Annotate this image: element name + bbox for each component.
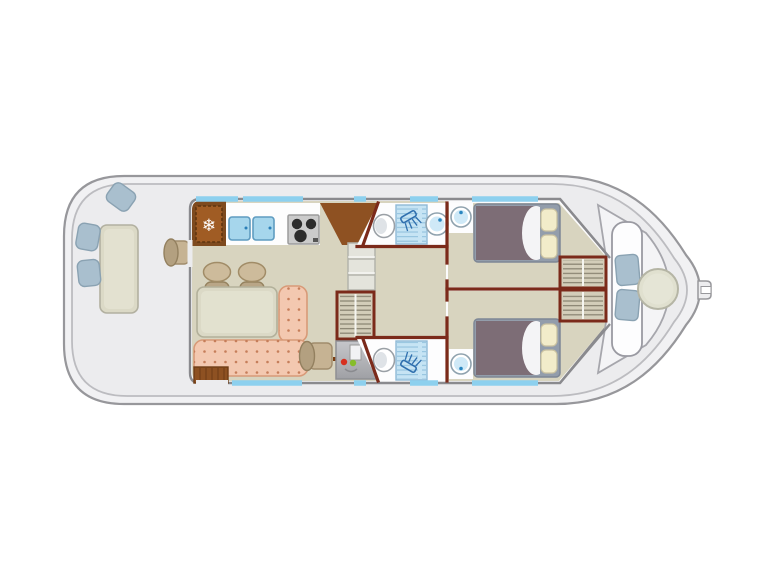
- side-door-opening: [196, 380, 228, 386]
- deck-cushion-3: [77, 259, 102, 287]
- sink-1-drain: [245, 227, 248, 230]
- stove-burner-3: [294, 230, 306, 242]
- bow-wardrobes: [560, 257, 606, 321]
- panel-led-red: [341, 359, 347, 365]
- wardrobe-mid: [337, 292, 374, 339]
- steps: [348, 243, 375, 290]
- deck-cushion-2: [75, 222, 101, 251]
- stove-burner-1: [292, 219, 302, 229]
- washbasin-cabin-top: [451, 207, 471, 227]
- stove-burner-2: [306, 219, 316, 229]
- floorplan-canvas: ❄: [0, 0, 768, 576]
- wardrobe-cabin-bottom: [560, 290, 606, 321]
- shower-bottom: [396, 341, 427, 380]
- pillow: [541, 350, 557, 373]
- panel-display: [350, 345, 361, 360]
- bow-cushion-2: [615, 289, 641, 321]
- dining-table-top: [201, 291, 273, 333]
- deck-table-top: [104, 229, 134, 309]
- aft-door-opening: [188, 240, 193, 267]
- interior-helm-chair: [300, 342, 333, 371]
- fridge-snowflake-icon: ❄: [202, 216, 216, 236]
- wardrobe-cabin-top: [560, 257, 606, 288]
- stove-controls: [313, 238, 318, 242]
- washbasin-cabin-bottom: [451, 354, 471, 374]
- toilet-top: [374, 215, 395, 238]
- sink-2-drain: [269, 227, 272, 230]
- pillow: [541, 209, 557, 231]
- pillow: [541, 324, 557, 346]
- panel-led-green: [350, 360, 356, 366]
- stove: [288, 215, 319, 244]
- washbasin-top-bathroom: [426, 213, 448, 235]
- double-bed-bottom: [474, 319, 560, 377]
- shower-top: [396, 205, 427, 244]
- toilet-bottom: [374, 349, 395, 372]
- galley: ❄: [192, 201, 378, 246]
- double-bed-top: [474, 204, 560, 262]
- exterior-helm-seat: [164, 239, 189, 266]
- bow-cushion-1: [615, 254, 641, 286]
- houseboat-floorplan: ❄: [0, 0, 768, 576]
- pillow: [541, 235, 557, 258]
- bow-cleat: [698, 281, 711, 299]
